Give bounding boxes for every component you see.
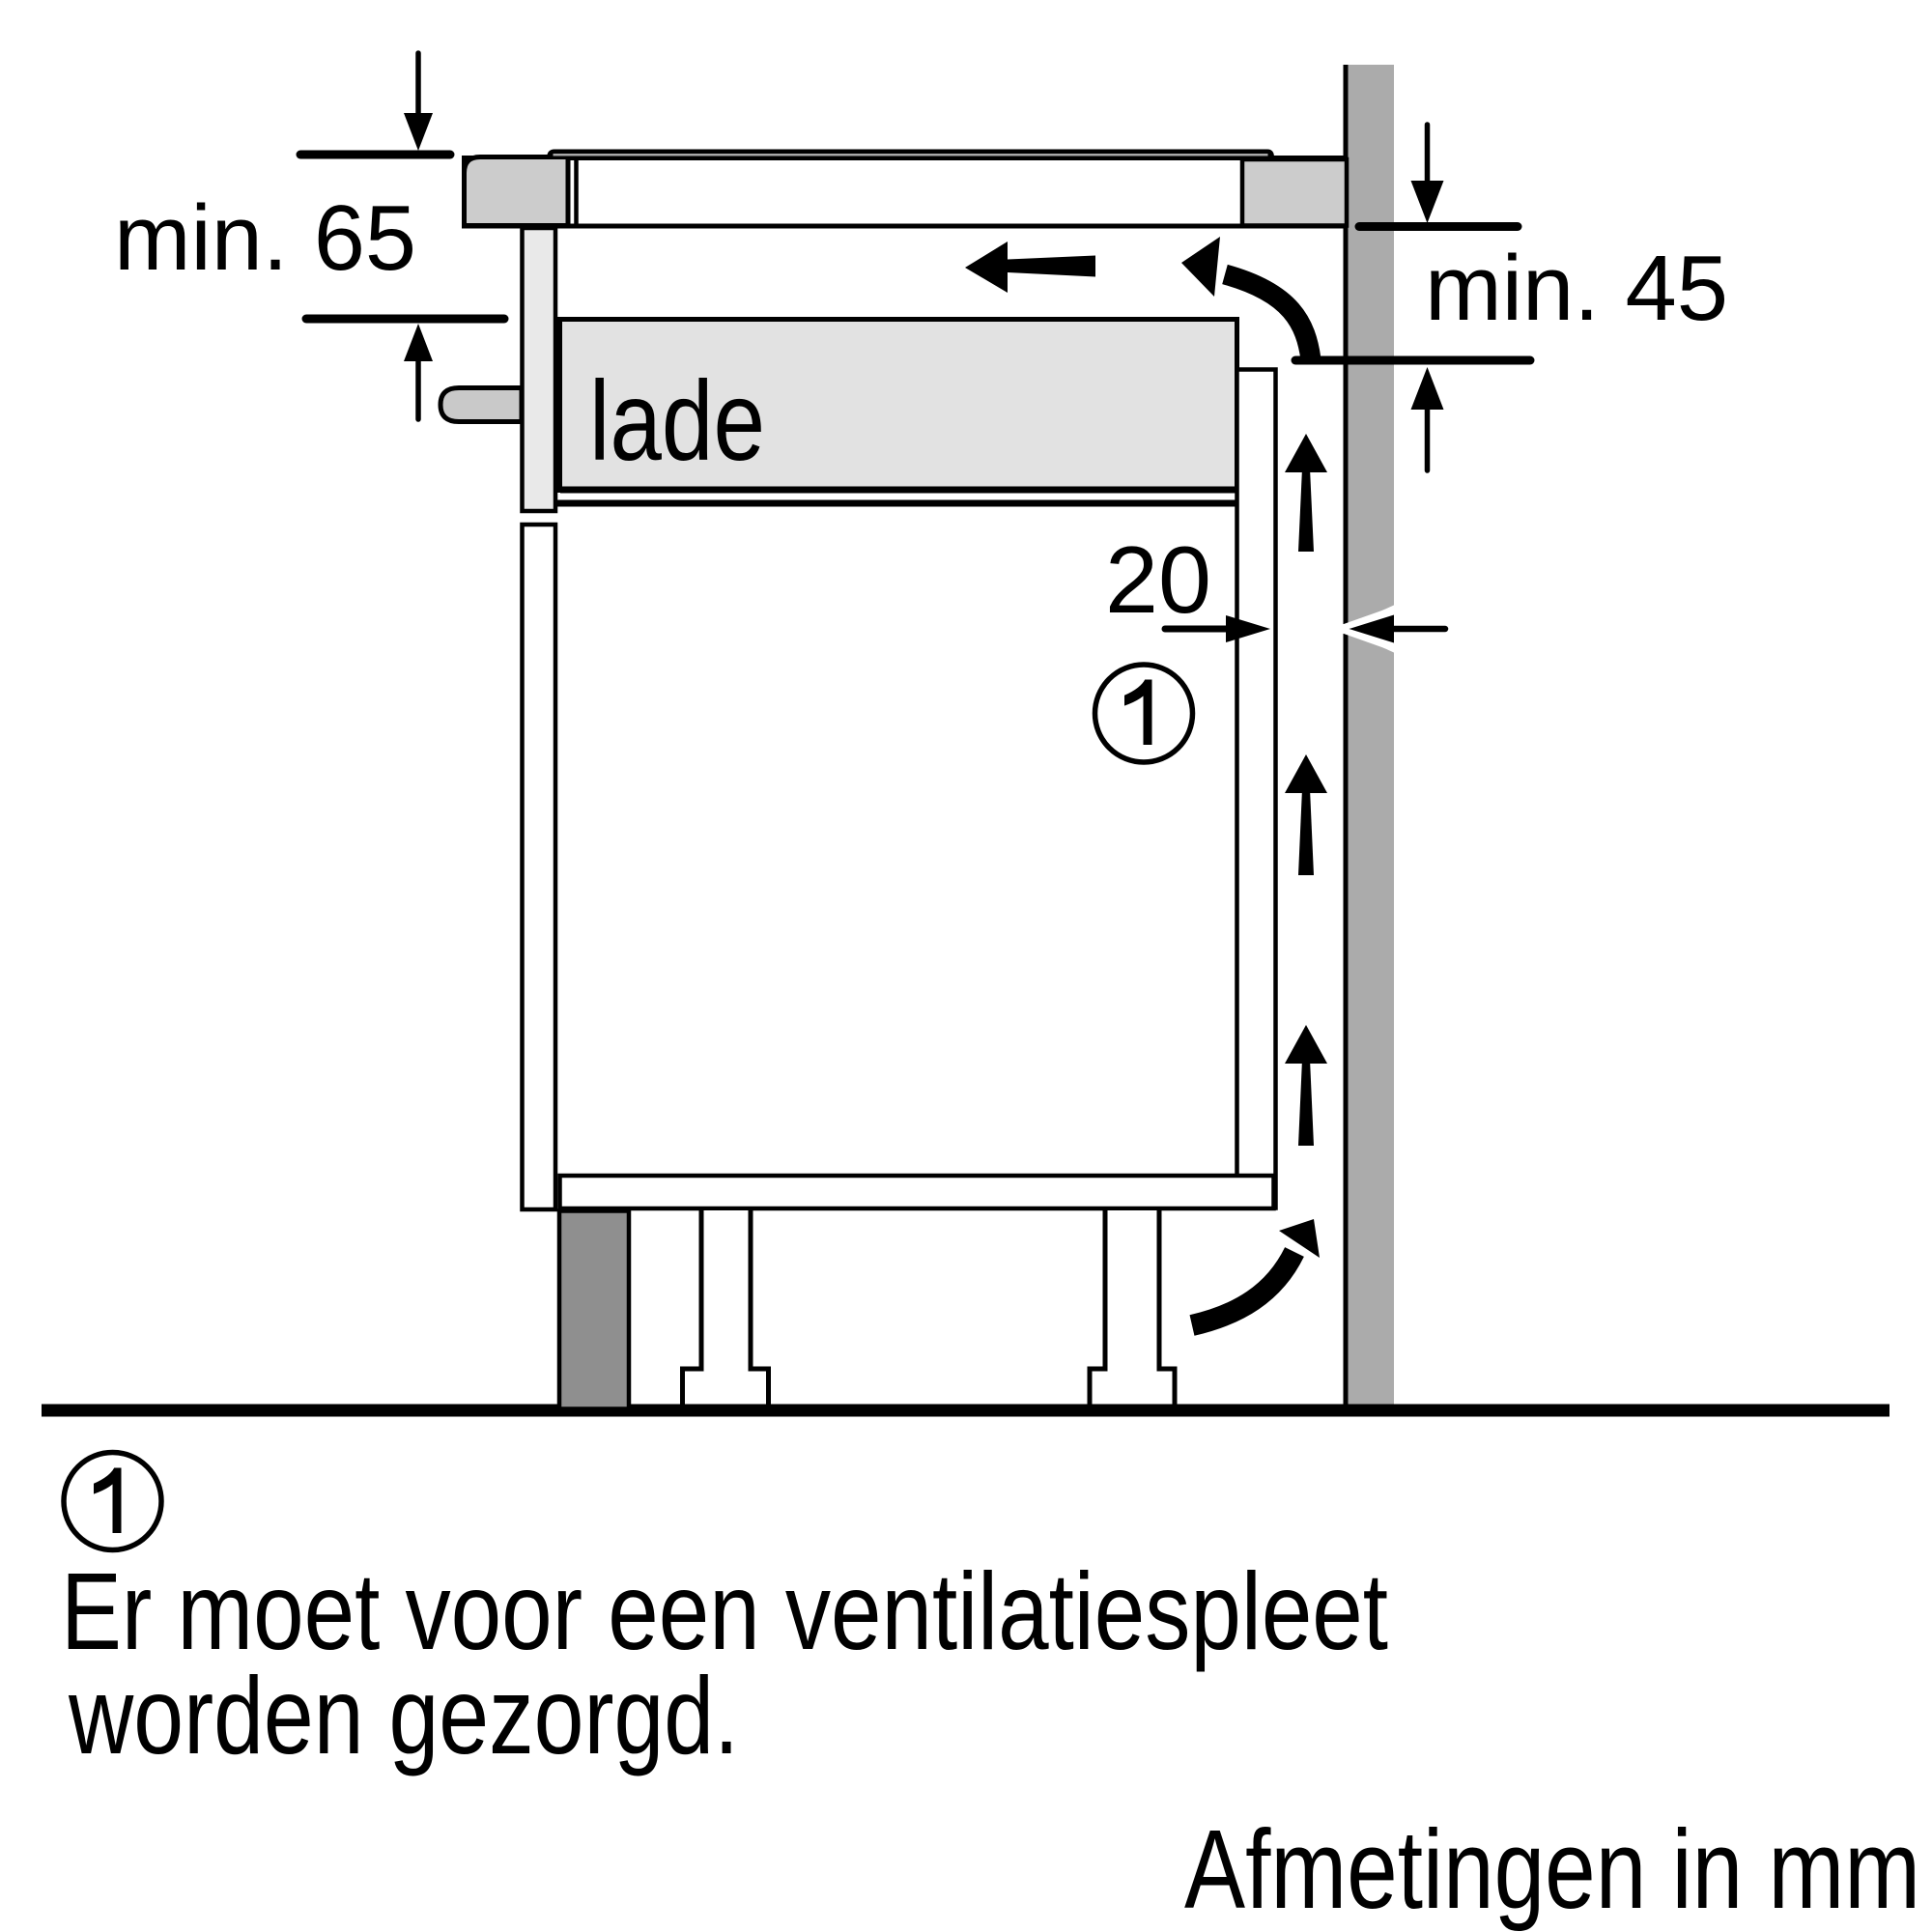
svg-text:lade: lade [589, 357, 765, 484]
svg-text:Afmetingen in mm: Afmetingen in mm [1184, 1806, 1920, 1932]
svg-text:min. 65: min. 65 [114, 186, 416, 290]
svg-text:min. 45: min. 45 [1425, 237, 1728, 340]
svg-text:20: 20 [1105, 526, 1211, 633]
svg-text:worden gezorgd.: worden gezorgd. [68, 1655, 739, 1776]
